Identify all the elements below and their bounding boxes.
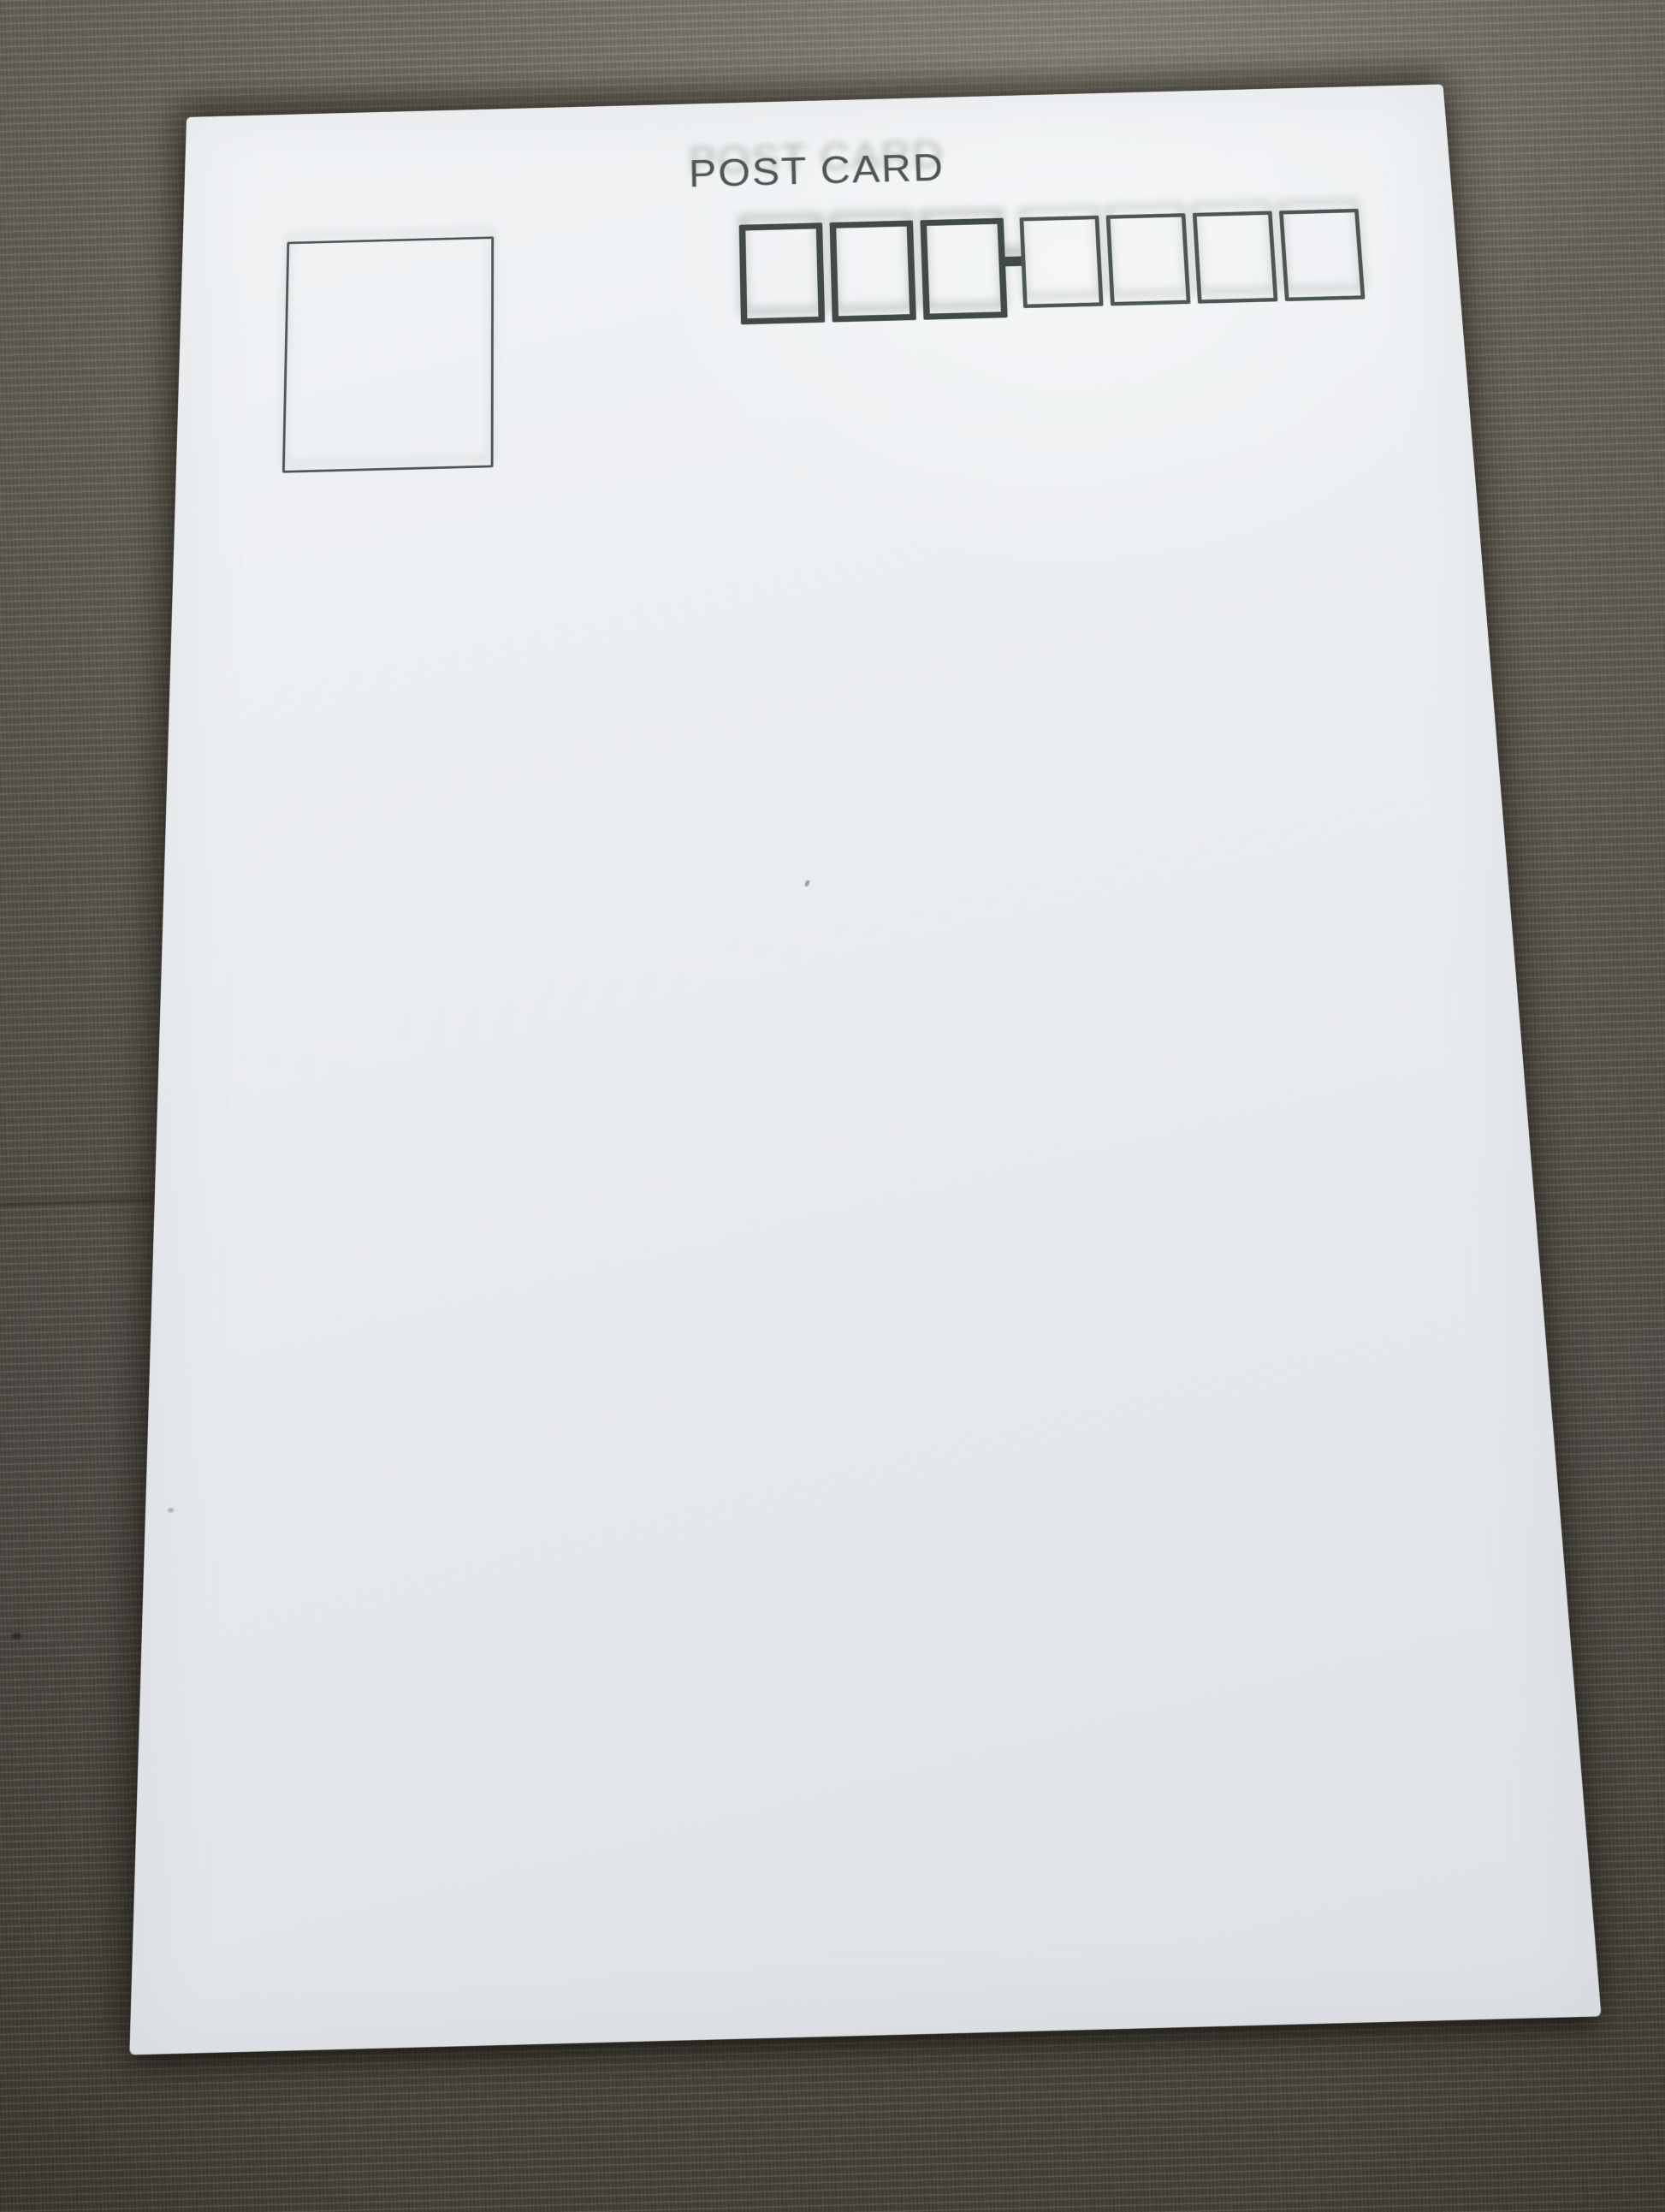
postcard-title: POST CARD bbox=[184, 135, 1450, 206]
postal-code-box bbox=[1279, 209, 1366, 301]
postal-code-row bbox=[739, 209, 1366, 325]
stamp-box bbox=[282, 236, 494, 472]
postcard: POST CARD bbox=[129, 84, 1601, 2055]
postal-code-box bbox=[920, 218, 1007, 320]
postal-code-box bbox=[830, 220, 916, 322]
photo-scene: POST CARD bbox=[0, 0, 1665, 2212]
postal-code-separator bbox=[1005, 256, 1022, 266]
postal-code-box bbox=[1020, 216, 1104, 308]
fabric-speck bbox=[12, 1633, 21, 1640]
postal-code-box bbox=[739, 222, 825, 324]
card-speck bbox=[804, 880, 810, 887]
postal-code-box bbox=[1193, 211, 1278, 303]
card-speck bbox=[168, 1508, 174, 1513]
postal-code-box bbox=[1106, 213, 1191, 305]
